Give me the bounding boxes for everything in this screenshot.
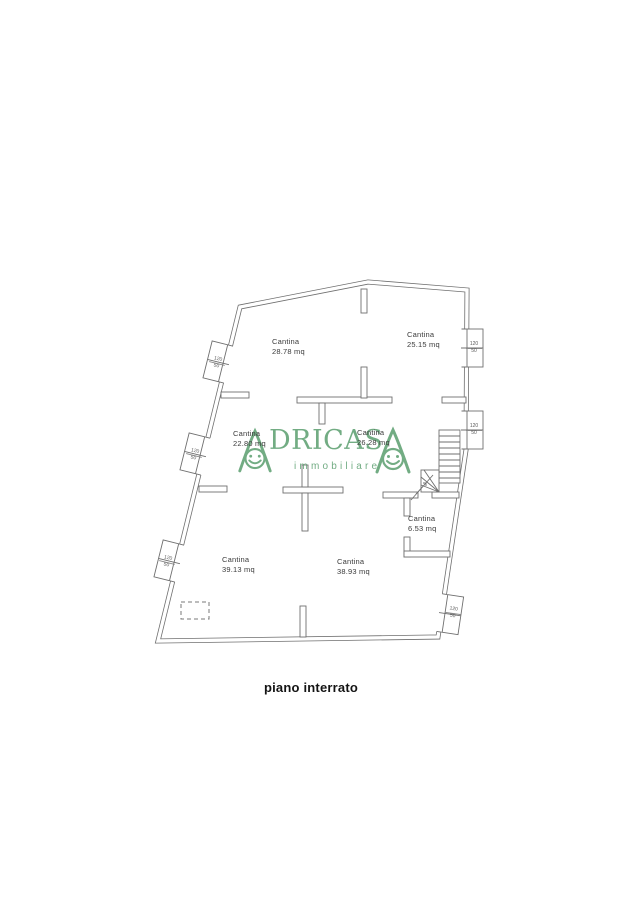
window-dimension-label: 120 50 [466, 342, 482, 355]
room-label: Cantina 39.13 mq [222, 555, 255, 574]
room-label: Cantina 26.28 mq [357, 428, 390, 447]
room-label: Cantina 22.80 mq [233, 429, 266, 448]
staircase [411, 430, 460, 500]
room-label: Cantina 25.15 mq [407, 330, 440, 349]
window-dimension-label: 120 50 [466, 424, 482, 437]
dashed-area-marker [181, 602, 209, 619]
room-label: Cantina 28.78 mq [272, 337, 305, 356]
floor-caption: piano interrato [240, 680, 382, 695]
room-label: Cantina 38.93 mq [337, 557, 370, 576]
window-dimension-label: 120 50 [444, 606, 462, 621]
scanned-floor-plan-page: DRICAS immobiliare Cantina 28.78 mq Cant… [0, 0, 635, 900]
room-label: Cantina 6.53 mq [408, 514, 437, 533]
brand-tagline: immobiliare [294, 461, 380, 472]
